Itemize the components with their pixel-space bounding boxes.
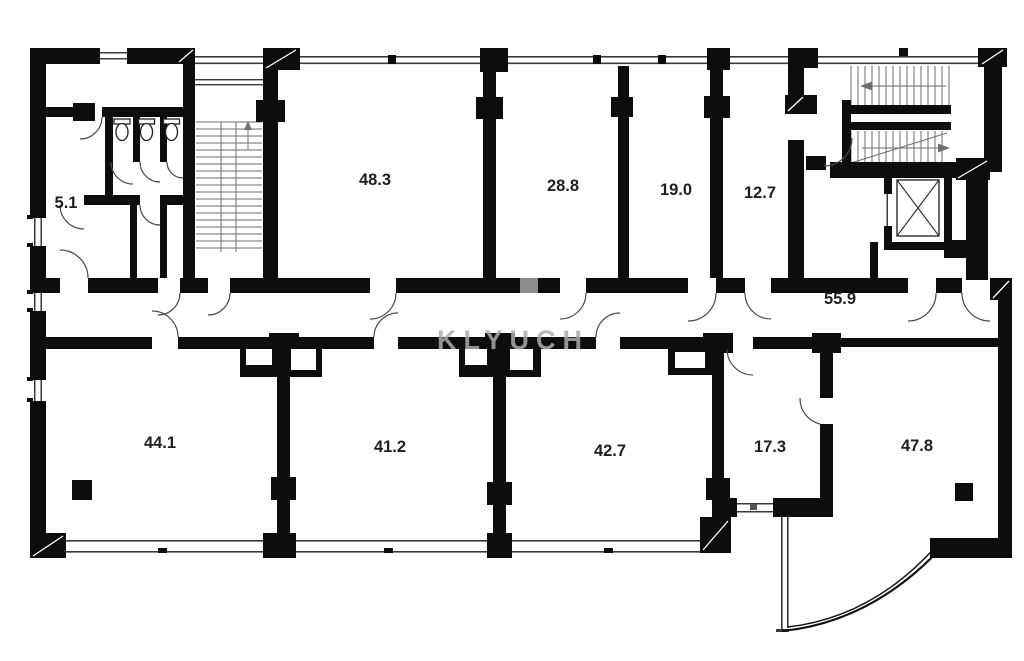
room-label-bottom-3: 42.7	[594, 442, 626, 460]
room-label-bottom-1: 44.1	[144, 434, 176, 452]
room-label-top-4: 12.7	[744, 184, 776, 202]
floor-plan-drawing: 5.1 48.3 28.8 19.0 12.7 55.9 44.1 41.2 4…	[0, 0, 1024, 661]
room-label-bottom-4: 17.3	[754, 438, 786, 456]
floor-plan: 5.1 48.3 28.8 19.0 12.7 55.9 44.1 41.2 4…	[0, 0, 1024, 661]
room-label-top-2: 28.8	[547, 177, 579, 195]
column-room-47-8	[955, 483, 973, 501]
room-label-bottom-5: 47.8	[901, 437, 933, 455]
room-label-corridor: 55.9	[824, 290, 856, 308]
toilet-fixtures	[114, 119, 180, 141]
room-label-wc: 5.1	[55, 194, 78, 212]
room-label-bottom-2: 41.2	[374, 438, 406, 456]
watermark-text: KLYUCH	[437, 325, 589, 355]
room-label-top-3: 19.0	[660, 181, 692, 199]
column-room-44-1	[72, 480, 92, 500]
room-label-top-1: 48.3	[359, 171, 391, 189]
